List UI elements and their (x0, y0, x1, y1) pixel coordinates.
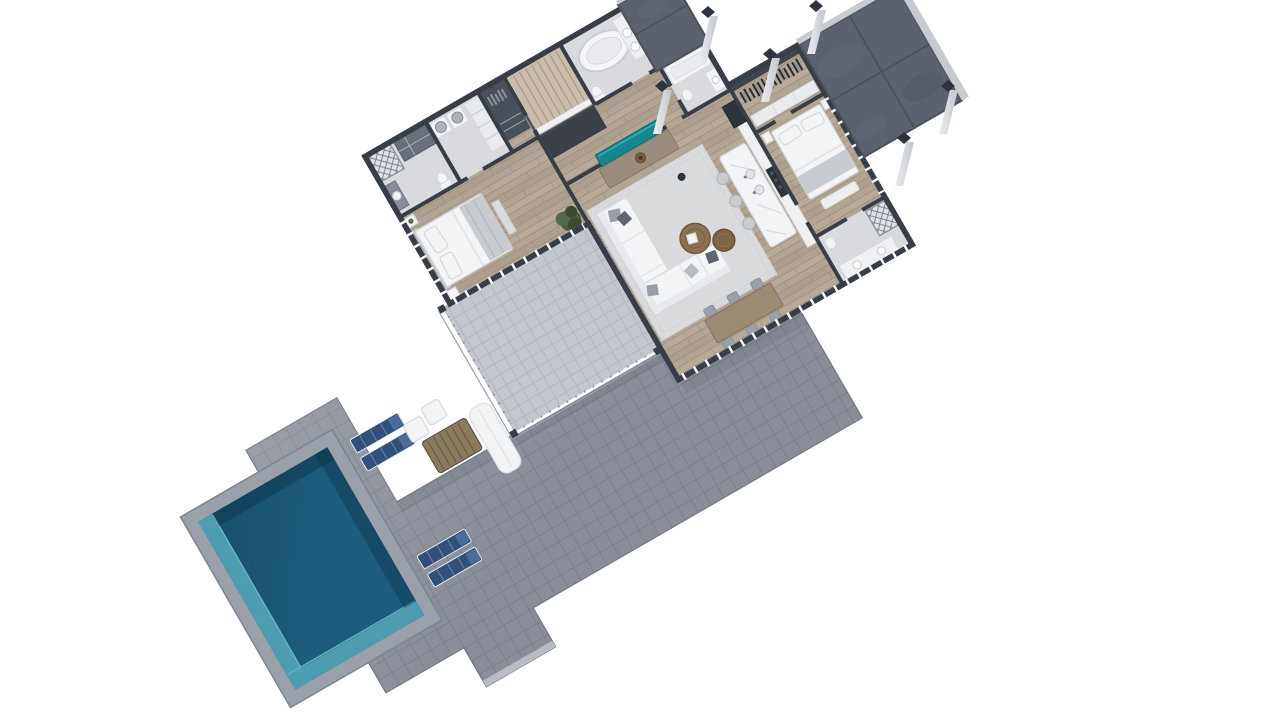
column (895, 132, 914, 186)
floorplan-canvas (0, 0, 1280, 720)
outdoor-ottoman-2 (420, 399, 447, 426)
floorplan-render (0, 0, 1280, 720)
sofa-pillow (646, 284, 658, 296)
pouf-tray (687, 233, 698, 244)
